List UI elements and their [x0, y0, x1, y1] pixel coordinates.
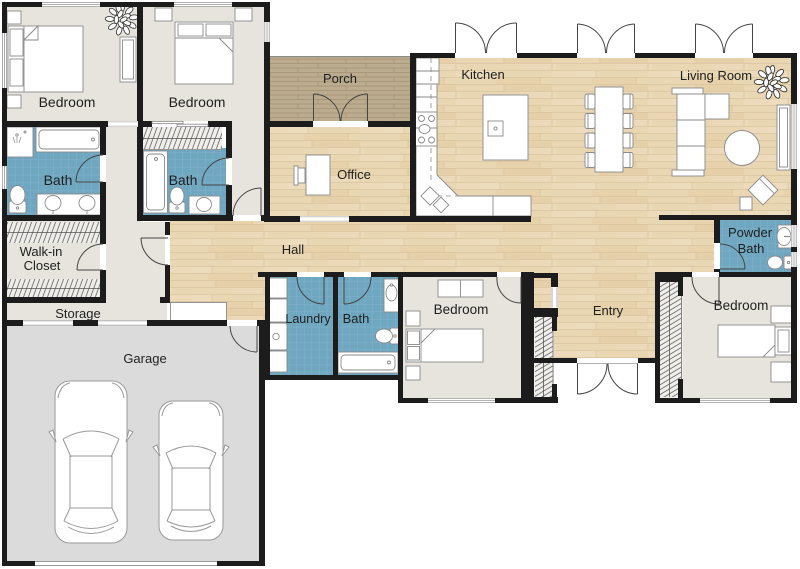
svg-text:Garage: Garage: [123, 351, 166, 366]
svg-text:Bath: Bath: [44, 172, 73, 188]
svg-text:Bath: Bath: [169, 172, 198, 188]
svg-text:Closet: Closet: [24, 258, 61, 273]
svg-text:Bedroom: Bedroom: [714, 298, 769, 313]
svg-text:Walk-in: Walk-in: [20, 244, 63, 259]
svg-text:Bedroom: Bedroom: [169, 94, 226, 110]
svg-text:Entry: Entry: [593, 303, 624, 318]
svg-text:Hall: Hall: [282, 242, 305, 257]
svg-text:Powder: Powder: [728, 225, 773, 240]
svg-text:Bedroom: Bedroom: [434, 302, 489, 317]
svg-text:Bedroom: Bedroom: [39, 94, 96, 110]
svg-text:Bath: Bath: [738, 241, 765, 256]
svg-text:Porch: Porch: [323, 71, 357, 86]
svg-text:Laundry: Laundry: [285, 312, 331, 326]
svg-text:Office: Office: [337, 167, 371, 182]
svg-text:Living Room: Living Room: [680, 68, 752, 83]
svg-text:Kitchen: Kitchen: [461, 67, 504, 82]
svg-text:Bath: Bath: [343, 311, 370, 326]
svg-text:Storage: Storage: [55, 306, 101, 321]
